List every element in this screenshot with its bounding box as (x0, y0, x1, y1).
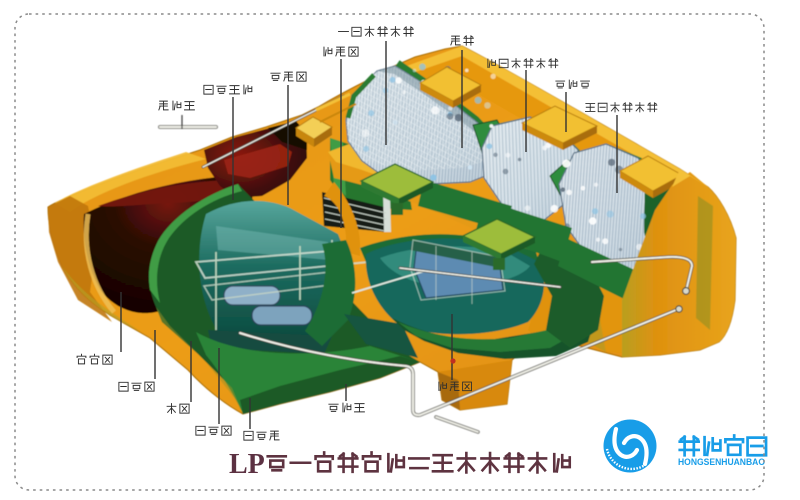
svg-text:LP: LP (229, 449, 265, 480)
svg-text:HONGSENHUANBAO: HONGSENHUANBAO (678, 457, 765, 467)
